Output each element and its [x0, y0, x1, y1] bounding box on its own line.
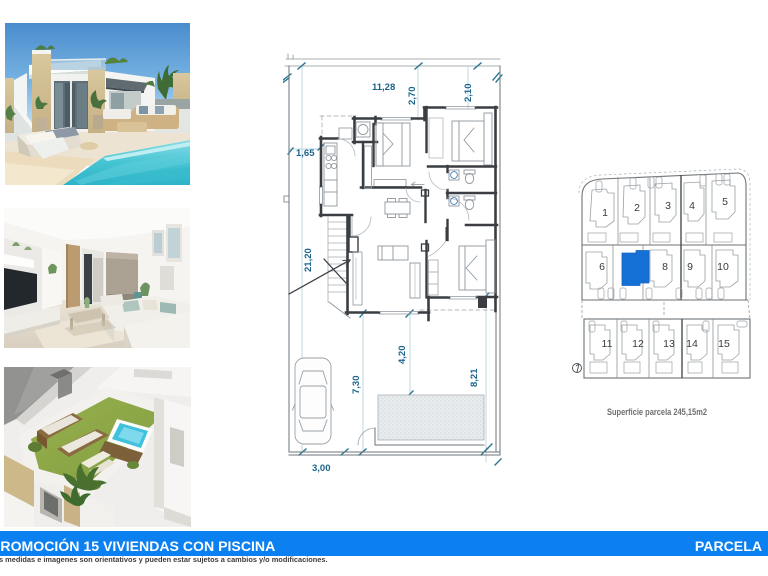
svg-text:2: 2: [634, 202, 640, 214]
svg-text:11: 11: [602, 338, 613, 350]
svg-text:6: 6: [599, 261, 605, 273]
svg-text:2,70: 2,70: [407, 87, 418, 106]
svg-text:3,00: 3,00: [312, 463, 331, 474]
svg-text:2,10: 2,10: [463, 84, 474, 103]
svg-text:1: 1: [602, 207, 608, 219]
svg-text:14: 14: [686, 338, 698, 350]
svg-text:11,28: 11,28: [372, 82, 395, 93]
svg-text:5: 5: [722, 196, 728, 208]
svg-text:21,20: 21,20: [303, 248, 314, 272]
svg-text:4,20: 4,20: [397, 346, 408, 365]
svg-text:4: 4: [689, 200, 695, 212]
svg-text:3: 3: [665, 200, 671, 212]
svg-text:12: 12: [632, 338, 644, 350]
svg-text:13: 13: [663, 338, 675, 350]
svg-text:10: 10: [717, 261, 729, 273]
svg-text:15: 15: [718, 338, 730, 350]
svg-text:9: 9: [687, 261, 693, 273]
svg-text:7,30: 7,30: [351, 376, 362, 395]
svg-text:8,21: 8,21: [469, 368, 480, 387]
svg-text:1,65: 1,65: [296, 148, 315, 159]
svg-text:8: 8: [662, 261, 668, 273]
svg-text:Superficie parcela 245,15m2: Superficie parcela 245,15m2: [607, 407, 707, 417]
